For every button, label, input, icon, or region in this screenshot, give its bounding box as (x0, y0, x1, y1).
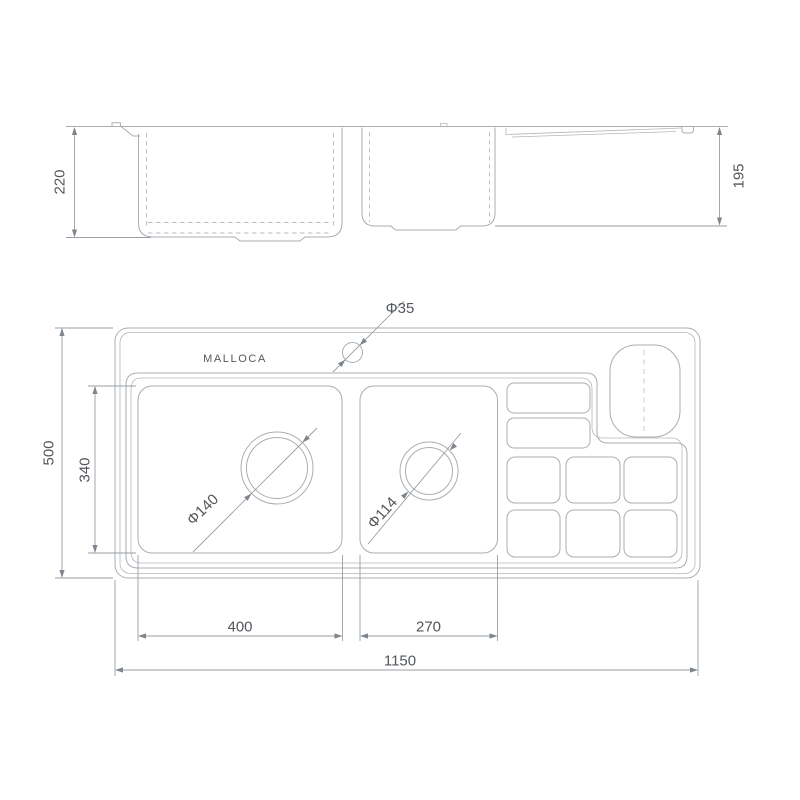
drainboard-square-6 (624, 510, 677, 557)
dim-1150-label: 1150 (384, 653, 416, 670)
dim-400-arrow-left (138, 633, 146, 638)
dim-500-ext (55, 328, 113, 578)
bowl2-drain-arrow2 (450, 443, 458, 451)
bowl2-drain-group: Φ114 (364, 433, 461, 544)
plan-bowl1 (138, 386, 342, 553)
dimension-depth-left: 220 (51, 127, 77, 238)
drainboard-square-2 (566, 457, 620, 503)
dim-340-arrow-top (92, 386, 97, 394)
dim-400-arrow-right (335, 633, 343, 638)
elevation-drainboard-slope2 (512, 132, 676, 138)
dim-195-label: 195 (730, 163, 747, 188)
recess-outline-outer (126, 373, 687, 568)
recess-outline-inner (131, 378, 682, 563)
dimension-overall-width: 1150 (115, 653, 698, 673)
dim-270-arrow-right (490, 633, 498, 638)
dim-1150-arrow-left (115, 667, 123, 672)
tap-hole-group: Φ35 (333, 300, 414, 372)
brand-label: MALLOCA (203, 353, 267, 365)
plan-outer-rim-inner (120, 333, 695, 574)
dim-220-arrow-bottom (72, 230, 77, 238)
drainboard-rib2 (507, 418, 590, 448)
dim-500-label: 500 (40, 440, 57, 465)
dimension-depth-right: 195 (717, 127, 747, 226)
drawing-sheet: 220 195 MALLOCA Φ35 (0, 0, 800, 800)
drainboard-square-3 (624, 457, 677, 503)
dimension-bowl-depth: 340 (76, 386, 136, 553)
waste-tray (610, 345, 680, 437)
dim-195-arrow-top (717, 127, 722, 135)
elevation-bowl1-outline (139, 128, 343, 242)
dim-340-arrow-bottom (92, 545, 97, 553)
dim-195-arrow-bottom (717, 218, 722, 226)
dim-220-arrow-top (72, 127, 77, 135)
drainboard-square-5 (566, 510, 620, 557)
elevation-right-lip (682, 127, 694, 133)
bowl2-drain-diameter-line (368, 433, 461, 544)
plan-outer-rim (115, 328, 700, 578)
bowl1-drain-label: Φ140 (184, 491, 222, 529)
bowl1-drain-group: Φ140 (184, 428, 317, 552)
dim-1150-arrow-right (690, 667, 698, 672)
elevation-front-lip (121, 127, 140, 137)
dim-220-label: 220 (51, 169, 68, 194)
plan-bowl2 (360, 386, 498, 553)
dim-340-label: 340 (76, 457, 93, 482)
elevation-bowl2-outline (362, 128, 495, 231)
drainboard-square-4 (507, 510, 560, 557)
elevation-view: 220 195 (51, 123, 747, 241)
dim-500-arrow-bottom (59, 570, 64, 578)
dim-500-arrow-top (59, 328, 64, 336)
sink-technical-drawing: 220 195 MALLOCA Φ35 (0, 0, 800, 800)
dim-400-label: 400 (227, 619, 252, 636)
dim-270-arrow-left (360, 633, 368, 638)
bowl2-drain-arrow1 (401, 492, 409, 500)
dim-270-label: 270 (416, 619, 441, 636)
dimension-bowl1-width: 400 (138, 619, 343, 639)
elevation-drainboard-slope1 (506, 128, 682, 135)
dimension-bowl2-width: 270 (360, 619, 498, 639)
drainboard-rib1 (507, 383, 590, 413)
tap-hole-label: Φ35 (386, 300, 415, 317)
elevation-clip-tab (112, 123, 121, 127)
dimension-overall-depth: 500 (40, 328, 113, 578)
drainboard-square-1 (507, 457, 560, 503)
plan-view: MALLOCA Φ35 (40, 300, 700, 676)
